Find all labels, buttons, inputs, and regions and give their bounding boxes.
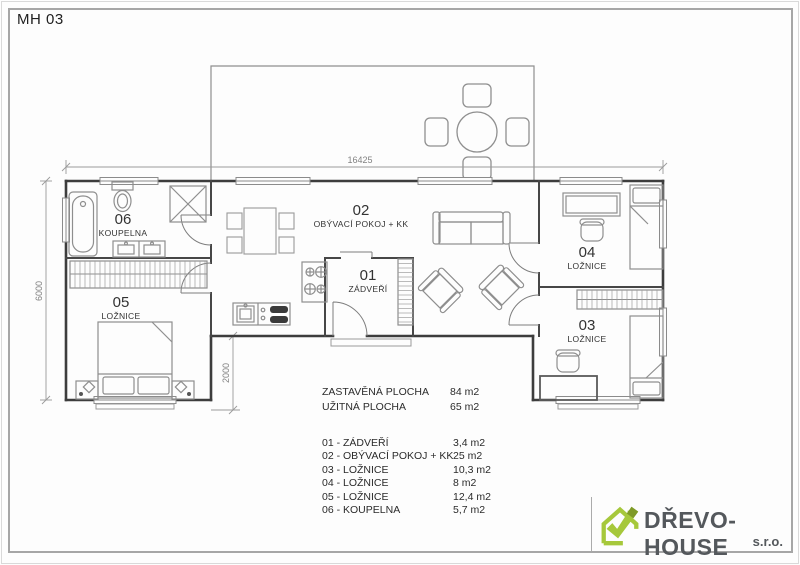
summary-label: ZASTAVĚNÁ PLOCHA	[322, 386, 429, 398]
area-summary: ZASTAVĚNÁ PLOCHA 84 m2 UŽITNÁ PLOCHA 65 …	[322, 385, 552, 414]
armchair-left	[417, 266, 465, 314]
bedroom04-door	[509, 243, 539, 273]
left-wing-step	[96, 404, 174, 409]
bedroom05-furniture	[70, 261, 207, 399]
legend-label: 04 - LOŽNICE	[322, 477, 389, 489]
bed-04	[630, 185, 663, 269]
legend-value: 25 m2	[453, 450, 482, 463]
room-legend: 01 - ZÁDVEŘÍ 3,4 m2 02 - OBÝVACÍ POKOJ +…	[322, 437, 562, 517]
cooktop-cabinet	[302, 262, 327, 302]
lamp-left	[83, 381, 94, 392]
legend-value: 5,7 m2	[453, 504, 485, 517]
room-06-name: KOUPELNA	[99, 228, 148, 238]
room-03-number: 03	[579, 317, 596, 334]
dining-table	[244, 208, 276, 254]
legend-label: 03 - LOŽNICE	[322, 464, 389, 476]
legend-row: 03 - LOŽNICE 10,3 m2	[322, 464, 562, 477]
legend-label: 06 - KOUPELNA	[322, 504, 400, 516]
dining-chair	[279, 213, 294, 229]
blanket-fold-04	[630, 206, 648, 224]
entry-door	[333, 302, 367, 336]
armchair-right	[477, 263, 525, 311]
logo-company-suffix: s.r.o.	[753, 534, 783, 549]
zadveri-opening	[340, 252, 372, 258]
legend-label: 02 - OBÝVACÍ POKOJ + KK	[322, 450, 453, 462]
legend-label: 01 - ZÁDVEŘÍ	[322, 437, 389, 449]
summary-row: ZASTAVĚNÁ PLOCHA 84 m2	[322, 385, 552, 400]
wardrobe-05	[70, 261, 207, 288]
summary-label: UŽITNÁ PLOCHA	[322, 401, 406, 413]
entry-step	[331, 339, 411, 346]
room-03-name: LOŽNICE	[568, 334, 607, 344]
dim-top-label: 16425	[347, 155, 372, 165]
sofa	[433, 212, 510, 244]
blanket-fold-03	[646, 362, 663, 378]
chair-top	[463, 84, 491, 107]
room-02-number: 02	[353, 202, 370, 219]
room-02-name: OBÝVACÍ POKOJ + KK	[314, 219, 409, 229]
round-table	[457, 112, 497, 152]
summary-value: 84 m2	[450, 385, 479, 400]
room-04-number: 04	[579, 244, 596, 261]
pillow-left	[103, 377, 134, 394]
bathroom-fixtures	[69, 182, 206, 257]
pillow-03	[633, 382, 660, 395]
dim-porch-label: 2000	[221, 363, 231, 383]
right-wing-step	[558, 404, 638, 409]
room-01-name: ZÁDVEŘÍ	[349, 284, 388, 294]
pillow-04	[633, 188, 660, 203]
room-05-name: LOŽNICE	[102, 311, 141, 321]
room-01-number: 01	[360, 267, 377, 284]
room-06-number: 06	[115, 211, 132, 228]
titleblock-divider	[591, 497, 592, 551]
dining-set	[227, 208, 294, 254]
chair-bottom	[463, 157, 491, 180]
room-05-number: 05	[113, 294, 130, 311]
chair-right	[506, 118, 529, 146]
blanket-fold	[152, 322, 172, 342]
legend-row: 04 - LOŽNICE 8 m2	[322, 477, 562, 490]
room-04-name: LOŽNICE	[568, 261, 607, 271]
double-bed	[98, 322, 172, 398]
legend-row: 01 - ZÁDVEŘÍ 3,4 m2	[322, 437, 562, 450]
pillow-right	[138, 377, 169, 394]
kitchen	[233, 262, 327, 325]
living-furniture	[398, 212, 525, 325]
legend-row: 06 - KOUPELNA 5,7 m2	[322, 504, 562, 517]
summary-value: 65 m2	[450, 400, 479, 415]
stove-element	[270, 316, 288, 323]
terrace-table-set	[425, 84, 529, 180]
hall-shelf	[398, 259, 413, 325]
cooktop-burners	[305, 267, 327, 295]
lamp-right	[175, 381, 186, 392]
legend-value: 12,4 m2	[453, 491, 491, 504]
legend-row: 05 - LOŽNICE 12,4 m2	[322, 491, 562, 504]
dining-chair	[227, 213, 242, 229]
stove-element	[270, 306, 288, 313]
dim-left-label: 6000	[34, 281, 44, 301]
legend-value: 10,3 m2	[453, 464, 491, 477]
bedroom03-door	[509, 295, 539, 325]
legend-label: 05 - LOŽNICE	[322, 491, 389, 503]
dining-chair	[279, 237, 294, 253]
summary-row: UŽITNÁ PLOCHA 65 m2	[322, 400, 552, 415]
chair-left	[425, 118, 448, 146]
bed-03	[630, 316, 663, 398]
dining-chair	[227, 237, 242, 253]
legend-value: 3,4 m2	[453, 437, 485, 450]
drawing-sheet: MH 03 16425 6000 2000	[0, 0, 800, 565]
legend-row: 02 - OBÝVACÍ POKOJ + KK 25 m2	[322, 450, 562, 463]
bedroom03-furniture	[540, 290, 663, 400]
wardrobe-03	[577, 290, 663, 309]
legend-value: 8 m2	[453, 477, 476, 490]
house-check-icon	[597, 502, 643, 548]
